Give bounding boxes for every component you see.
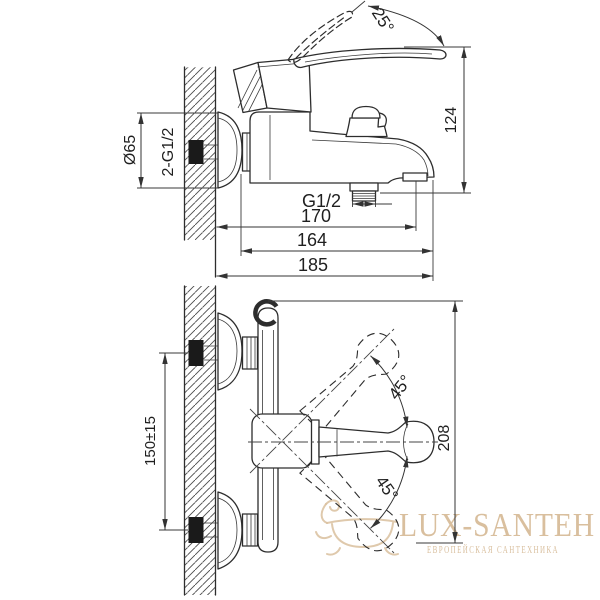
aerator xyxy=(403,173,427,181)
wall-section-top xyxy=(185,67,216,277)
watermark-brand: LUX-SANTEH xyxy=(399,507,595,544)
dim-handle-angle-25: 25° xyxy=(368,4,471,47)
dim-length-170: 170 xyxy=(217,181,417,231)
dim-170-label: 170 xyxy=(301,206,331,226)
dim-124-label: 124 xyxy=(443,107,460,134)
dim-185-label: 185 xyxy=(298,255,328,275)
dim-length-185: 185 xyxy=(217,255,434,276)
nut-bottom xyxy=(243,514,258,546)
shower-outlet xyxy=(350,183,378,201)
dim-spacing-150: 150±15 xyxy=(142,353,188,530)
drawing-svg: LUX-SANTEH ЕВРОПЕЙСКАЯ САНТЕХНИКА xyxy=(0,0,600,600)
plan-view: 45° 45° 150±15 208 xyxy=(142,286,463,595)
nut-top xyxy=(243,337,258,369)
dim-208-label: 208 xyxy=(436,425,453,452)
dim-d65-label: Ø65 xyxy=(122,135,139,165)
dim-150-label: 150±15 xyxy=(142,416,159,466)
side-view: Ø65 2-G1/2 25° 124 G1/2 170 164 xyxy=(122,1,471,281)
wall-section-bottom xyxy=(185,286,216,595)
mounting-flange xyxy=(218,112,242,188)
lever-handle xyxy=(294,48,446,67)
faucet-technical-drawing: LUX-SANTEH ЕВРОПЕЙСКАЯ САНТЕХНИКА xyxy=(0,0,600,600)
dim-45down-label: 45° xyxy=(372,472,402,504)
escutcheon-top xyxy=(218,313,242,390)
valve-body-plan xyxy=(252,414,312,468)
diverter-knob xyxy=(346,107,387,137)
watermark-tagline: ЕВРОПЕЙСКАЯ САНТЕХНИКА xyxy=(427,544,559,556)
dim-2g12-label: 2-G1/2 xyxy=(160,127,177,176)
dim-164-label: 164 xyxy=(297,230,327,250)
dim-25deg-label: 25° xyxy=(368,4,398,36)
dim-45up-label: 45° xyxy=(385,371,416,403)
escutcheon-bottom xyxy=(218,492,242,569)
faucet-body-spout xyxy=(250,112,434,183)
